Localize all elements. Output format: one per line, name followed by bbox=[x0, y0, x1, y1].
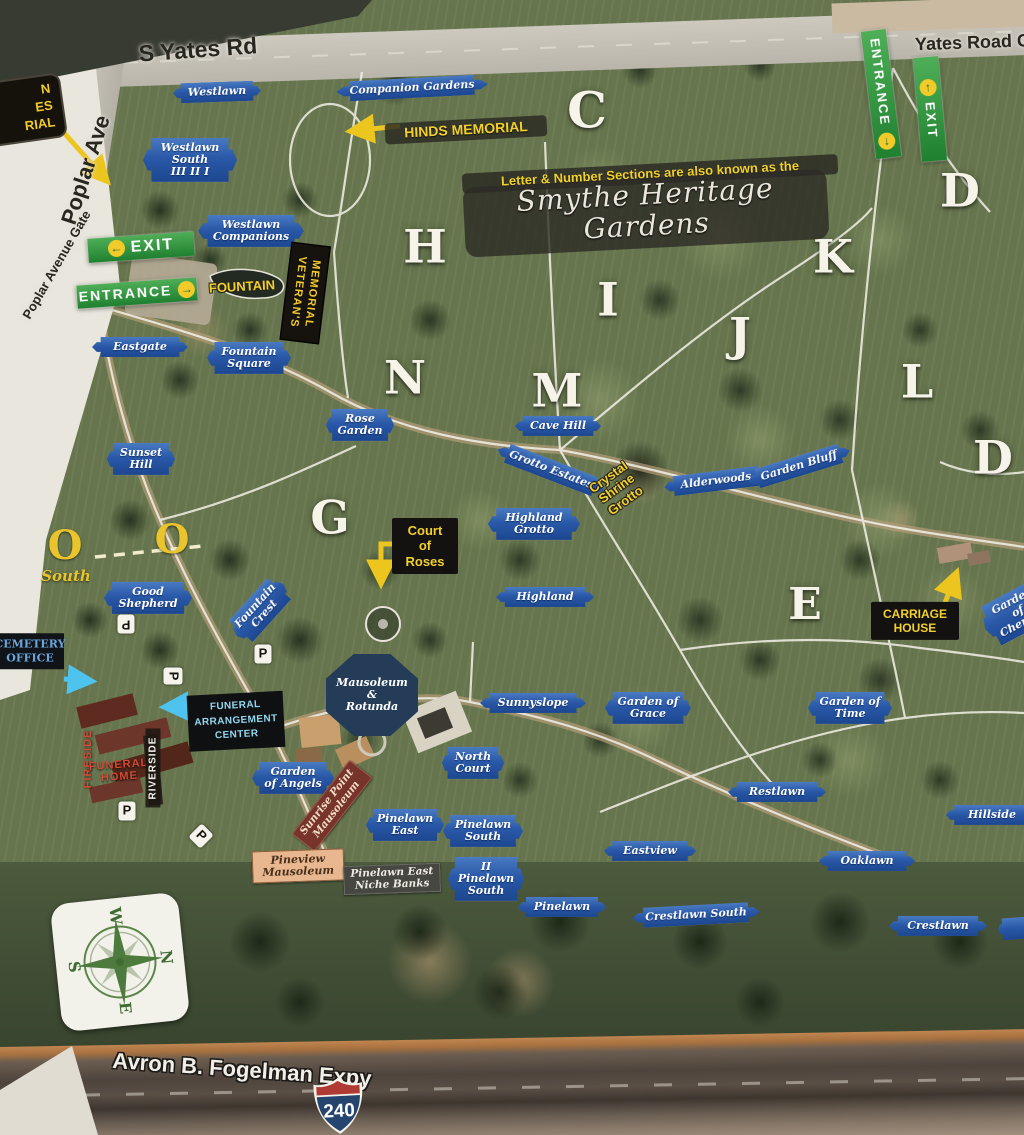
plaque-garden-of-grace-text: Garden of Grace bbox=[618, 696, 679, 720]
plaque-eastview: Eastview bbox=[604, 841, 696, 861]
plaque-oaklawn-text: Oaklawn bbox=[840, 855, 893, 867]
section-letter-m: M bbox=[532, 366, 583, 417]
section-letter-l: L bbox=[901, 357, 933, 408]
compass-east-label: E bbox=[115, 1001, 135, 1015]
plaque-partial bbox=[997, 915, 1024, 940]
label-funeral-home: FUNERAL HOME bbox=[88, 757, 149, 785]
sign-exit-north: ↑EXIT bbox=[913, 56, 947, 162]
section-letter-o-east-text: O bbox=[155, 518, 190, 562]
section-letter-e-text: E bbox=[788, 581, 822, 629]
plaque-garden-of-angels-text: Garden of Angels bbox=[264, 766, 322, 790]
section-letter-d-north: D bbox=[940, 166, 980, 217]
section-letter-n-text: N bbox=[384, 353, 426, 404]
parking-sign: P bbox=[118, 615, 135, 634]
sign-cemetery-office-text: CEMETERY OFFICE bbox=[0, 637, 65, 665]
plaque-good-shepherd-text: Good Shepherd bbox=[118, 586, 177, 610]
road-label-yates-road-gate-text: Yates Road Ga bbox=[915, 31, 1024, 55]
sign-pinelawn-east-niche-banks-text: Pinelawn East Niche Banks bbox=[350, 866, 434, 892]
plaque-oaklawn: Oaklawn bbox=[819, 851, 915, 871]
section-letter-i: I bbox=[597, 275, 619, 326]
plaque-pinelawn-south-text: Pinelawn South bbox=[455, 819, 511, 843]
label-funeral-home-text: FUNERAL HOME bbox=[88, 757, 149, 785]
plaque-hillside: Hillside bbox=[946, 805, 1024, 825]
plaque-rose-garden: Rose Garden bbox=[326, 409, 394, 441]
sign-corner-partial-text: N ES RIAL bbox=[0, 81, 56, 140]
road-label-s-yates-text: S Yates Rd bbox=[138, 33, 258, 67]
sign-exit-north-text: EXIT bbox=[922, 101, 939, 139]
parking-sign: P bbox=[255, 645, 272, 664]
plaque-garden-bluff: Garden Bluff bbox=[745, 441, 852, 491]
plaque-north-court-text: North Court bbox=[455, 751, 491, 775]
section-letter-j: J bbox=[729, 310, 751, 361]
road-label-s-yates: S Yates Rd bbox=[138, 33, 258, 67]
plaque-garden-of-angels: Garden of Angels bbox=[252, 762, 334, 794]
plaque-westlawn-south-text: Westlawn South III II I bbox=[161, 142, 220, 178]
sign-mausoleum-rotunda-text: Mausoleum & Rotunda bbox=[336, 677, 408, 713]
sign-exit-west-arrow-icon: ← bbox=[107, 240, 125, 258]
compass-north-label: N bbox=[156, 949, 176, 965]
plaque-sunset-hill-text: Sunset Hill bbox=[120, 447, 162, 471]
sign-veterans-memorial-text: VETERAN'S MEMORIAL bbox=[286, 249, 325, 338]
plaque-highland-text: Highland bbox=[516, 591, 573, 603]
band-hinds-memorial: HINDS MEMORIAL bbox=[385, 115, 548, 145]
label-crystal-shrine-grotto: Crystal Shrine Grotto bbox=[587, 459, 648, 520]
sign-entrance-north-arrow-icon: ↓ bbox=[877, 131, 896, 150]
section-letter-o-east: O bbox=[155, 518, 190, 562]
road-label-yates-road-gate: Yates Road Ga bbox=[915, 31, 1024, 55]
sign-veterans-memorial: VETERAN'S MEMORIAL bbox=[281, 243, 329, 343]
compass-west-label: W bbox=[105, 905, 126, 926]
plaque-garden-of-cherubs-text: Garden of Cherubs bbox=[987, 584, 1024, 640]
section-letter-d-east-text: D bbox=[973, 433, 1013, 484]
plaque-crestlawn-south: Crestlawn South bbox=[632, 902, 761, 929]
plaque-pinelawn-east: Pinelawn East bbox=[366, 809, 444, 841]
sign-mausoleum-rotunda: Mausoleum & Rotunda bbox=[326, 654, 418, 736]
plaque-eastgate-text: Eastgate bbox=[113, 341, 167, 353]
plaque-garden-of-grace: Garden of Grace bbox=[605, 692, 691, 724]
plaque-cave-hill-text: Cave Hill bbox=[530, 420, 586, 432]
sign-court-of-roses: Court of Roses bbox=[392, 518, 458, 574]
sign-carriage-house: CARRIAGE HOUSE bbox=[871, 602, 959, 640]
section-letter-k-text: K bbox=[813, 232, 853, 283]
plaque-north-court: North Court bbox=[442, 747, 504, 779]
plaque-companion-gardens-text: Companion Gardens bbox=[349, 79, 475, 98]
plaque-eastgate: Eastgate bbox=[92, 337, 188, 357]
parking-sign-text: P bbox=[123, 804, 132, 818]
plaque-westlawn-text: Westlawn bbox=[188, 85, 247, 99]
sign-exit-west: ←EXIT bbox=[87, 232, 194, 263]
label-south: South bbox=[41, 568, 91, 585]
sign-pineview-mausoleum-text: Pineview Mausoleum bbox=[262, 853, 334, 880]
section-letter-o-west: O bbox=[48, 524, 83, 568]
parking-sign: P bbox=[188, 823, 213, 848]
section-letter-i-text: I bbox=[597, 275, 619, 326]
section-letter-n: N bbox=[384, 353, 426, 404]
interstate-shield-icon: 240 bbox=[310, 1075, 367, 1135]
sign-exit-west-text: EXIT bbox=[130, 236, 175, 257]
section-letter-c-text: C bbox=[567, 83, 607, 138]
sign-exit-north-arrow-icon: ↑ bbox=[919, 78, 937, 96]
plaque-cave-hill: Cave Hill bbox=[515, 416, 601, 436]
sign-entrance-west-text: ENTRANCE bbox=[78, 283, 173, 305]
plaque-sunnyslope-text: Sunnyslope bbox=[498, 697, 569, 709]
section-letter-h-text: H bbox=[403, 222, 446, 273]
plaque-pinelawn-east-text: Pinelawn East bbox=[377, 813, 433, 837]
plaque-crestlawn-south-text: Crestlawn South bbox=[645, 906, 747, 923]
label-fountain: FOUNTAIN bbox=[209, 278, 276, 296]
plaque-sunnyslope: Sunnyslope bbox=[480, 693, 586, 713]
sign-entrance-west-arrow-icon: → bbox=[178, 280, 196, 298]
plaque-grotto-estates-text: Grotto Estates bbox=[507, 448, 594, 491]
plaque-fountain-square-text: Fountain Square bbox=[222, 346, 277, 370]
plaque-hillside-text: Hillside bbox=[968, 809, 1016, 821]
plaque-pinelawn-south-2: II Pinelawn South bbox=[448, 857, 524, 901]
section-letter-h: H bbox=[403, 222, 446, 273]
interstate-240-shield: 240 bbox=[310, 1075, 367, 1135]
label-fountain-text: FOUNTAIN bbox=[209, 278, 276, 296]
plaque-fountain-square: Fountain Square bbox=[207, 342, 291, 374]
plaque-pinelawn-south: Pinelawn South bbox=[443, 815, 523, 847]
sign-entrance-west: ENTRANCE→ bbox=[76, 277, 197, 308]
label-riverside: RIVERSIDE bbox=[146, 729, 161, 808]
plaque-garden-of-cherubs: Garden of Cherubs bbox=[975, 575, 1024, 649]
section-letter-k: K bbox=[813, 232, 853, 283]
plaque-fountain-crest-text: Fountain Crest bbox=[233, 581, 288, 638]
parking-sign-text: P bbox=[259, 647, 268, 661]
plaque-crestlawn-text: Crestlawn bbox=[907, 920, 969, 932]
compass-rose-icon: W N E S bbox=[50, 892, 191, 1033]
plaque-alderwoods-text: Alderwoods bbox=[680, 471, 752, 492]
plaque-westlawn-south: Westlawn South III II I bbox=[143, 138, 237, 182]
plaque-companion-gardens: Companion Gardens bbox=[336, 74, 489, 102]
highway-number-label: 240 bbox=[323, 1100, 356, 1123]
section-letter-l-text: L bbox=[901, 357, 933, 408]
section-letter-e: E bbox=[788, 581, 822, 629]
section-letter-g: G bbox=[310, 493, 349, 544]
parking-sign: P bbox=[164, 668, 183, 685]
plaque-pinelawn-south-2-text: II Pinelawn South bbox=[458, 861, 514, 897]
sign-pineview-mausoleum: Pineview Mausoleum bbox=[252, 848, 345, 883]
section-letter-m-text: M bbox=[532, 366, 583, 417]
sign-funeral-arrangement-center: FUNERAL ARRANGEMENT CENTER bbox=[187, 691, 286, 751]
plaque-garden-bluff-text: Garden Bluff bbox=[759, 449, 838, 484]
sign-pinelawn-east-niche-banks: Pinelawn East Niche Banks bbox=[343, 863, 441, 895]
plaque-garden-of-time-text: Garden of Time bbox=[820, 696, 881, 720]
plaque-highland-grotto-text: Highland Grotto bbox=[505, 512, 562, 536]
section-letter-j-text: J bbox=[729, 310, 751, 361]
label-riverside-text: RIVERSIDE bbox=[148, 737, 159, 800]
band-hinds-memorial-text: HINDS MEMORIAL bbox=[404, 119, 528, 141]
compass-rose: W N E S bbox=[50, 892, 191, 1033]
sign-corner-partial: N ES RIAL bbox=[0, 74, 66, 145]
parking-sign: P bbox=[119, 802, 136, 821]
plaque-pinelawn: Pinelawn bbox=[518, 897, 606, 917]
plaque-highland: Highland bbox=[496, 587, 594, 607]
compass-south-label: S bbox=[65, 960, 85, 973]
sign-court-of-roses-text: Court of Roses bbox=[405, 523, 444, 569]
plaque-crestlawn: Crestlawn bbox=[889, 916, 987, 936]
label-south-text: South bbox=[41, 568, 91, 585]
section-letter-g-text: G bbox=[310, 493, 349, 544]
plaque-pinelawn-text: Pinelawn bbox=[534, 901, 590, 913]
section-letter-d-north-text: D bbox=[940, 166, 980, 217]
sign-carriage-house-text: CARRIAGE HOUSE bbox=[883, 607, 947, 635]
sign-cemetery-office: CEMETERY OFFICE bbox=[0, 633, 64, 669]
plaque-eastview-text: Eastview bbox=[623, 845, 677, 857]
sign-entrance-north: ENTRANCE↓ bbox=[861, 29, 901, 159]
sign-funeral-arrangement-center-text: FUNERAL ARRANGEMENT CENTER bbox=[193, 697, 278, 745]
parking-sign-text: P bbox=[193, 828, 209, 844]
parking-sign-text: P bbox=[122, 617, 131, 631]
plaque-restlawn-text: Restlawn bbox=[749, 786, 805, 798]
plaque-westlawn-companions: Westlawn Companions bbox=[198, 215, 304, 247]
section-letter-d-east: D bbox=[973, 433, 1013, 484]
plaque-highland-grotto: Highland Grotto bbox=[488, 508, 580, 540]
parking-sign-text: P bbox=[166, 672, 180, 681]
plaque-westlawn: Westlawn bbox=[173, 80, 262, 103]
plaque-garden-of-time: Garden of Time bbox=[808, 692, 892, 724]
plaque-good-shepherd: Good Shepherd bbox=[104, 582, 192, 614]
label-crystal-shrine-grotto-text: Crystal Shrine Grotto bbox=[587, 459, 648, 520]
plaque-rose-garden-text: Rose Garden bbox=[337, 413, 382, 437]
plaque-sunset-hill: Sunset Hill bbox=[107, 443, 175, 475]
plaque-fountain-crest: Fountain Crest bbox=[225, 573, 296, 647]
cemetery-map-photo: S Yates RdYates Road GaPoplar AvePoplar … bbox=[0, 0, 1024, 1135]
section-letter-o-west-text: O bbox=[48, 524, 83, 568]
plaque-westlawn-companions-text: Westlawn Companions bbox=[213, 219, 289, 243]
plaque-restlawn: Restlawn bbox=[728, 782, 826, 802]
section-letter-c: C bbox=[567, 83, 607, 138]
sign-entrance-north-text: ENTRANCE bbox=[867, 38, 892, 127]
